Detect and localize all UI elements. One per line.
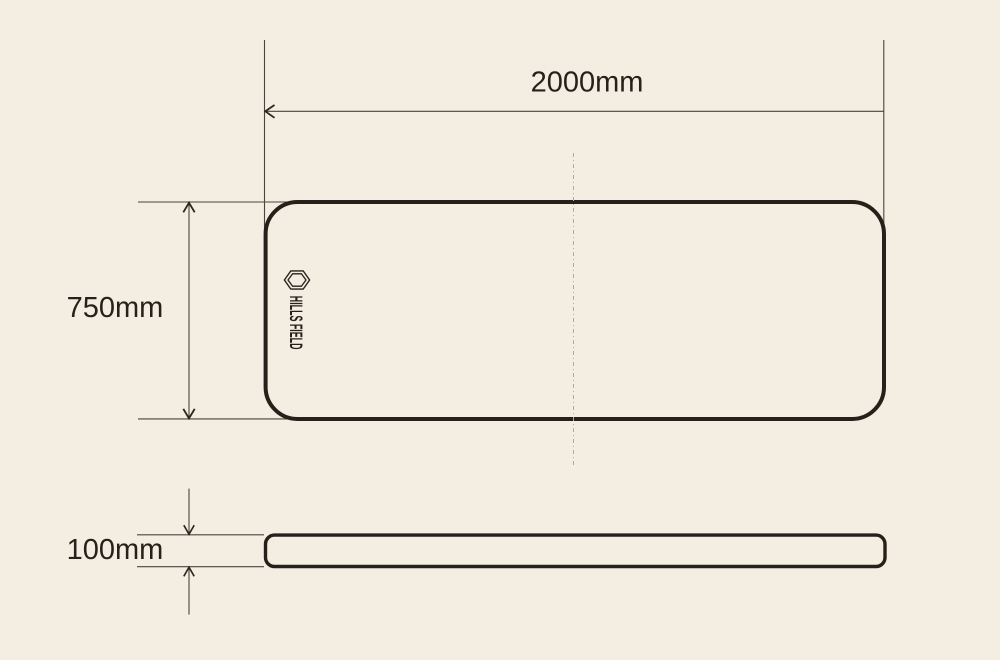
svg-text:2000mm: 2000mm bbox=[531, 67, 644, 99]
svg-text:750mm: 750mm bbox=[67, 292, 164, 324]
svg-text:HILLS FIELD: HILLS FIELD bbox=[286, 296, 306, 350]
svg-text:100mm: 100mm bbox=[67, 534, 164, 566]
